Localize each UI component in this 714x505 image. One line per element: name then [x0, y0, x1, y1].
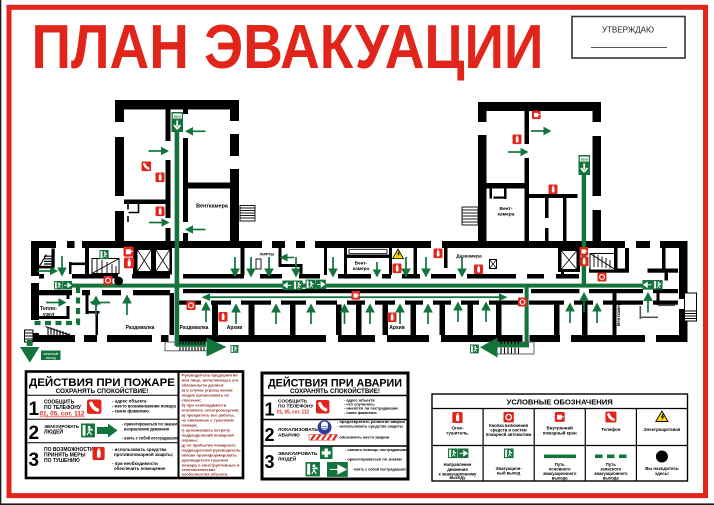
svg-text:- свою фамилию: - свою фамилию — [112, 409, 149, 414]
svg-text:- обозначить место аварии: - обозначить место аварии — [337, 435, 390, 440]
svg-text:- оказать помощь пострадавшим: - оказать помощь пострадавшим — [345, 447, 408, 452]
svg-text:ЛЮДЕЙ: ЛЮДЕЙ — [44, 428, 63, 436]
svg-text:- использовать средства защиты: - использовать средства защиты — [337, 424, 404, 429]
svg-text:ЭВАКУИРОВАТЬ: ЭВАКУИРОВАТЬ — [278, 451, 318, 457]
svg-text:Архив: Архив — [389, 325, 405, 331]
svg-text:ный выход: ный выход — [497, 471, 521, 476]
svg-text:ПО ТУШЕНИЮ: ПО ТУШЕНИЮ — [44, 458, 80, 464]
svg-text:Вент-: Вент- — [355, 261, 368, 266]
svg-text:узел: узел — [43, 312, 55, 318]
svg-text:01, 05, сот. 112: 01, 05, сот. 112 — [40, 411, 86, 418]
svg-text:ПЛАН ЭВАКУАЦИИ: ПЛАН ЭВАКУАЦИИ — [32, 13, 544, 82]
svg-text:выход: выход — [46, 356, 56, 360]
svg-text:тушитель.: тушитель. — [446, 431, 469, 436]
svg-text:направления движения: направления движения — [124, 427, 169, 432]
svg-text:2: 2 — [265, 425, 275, 445]
svg-text:особенностях объекта.: особенностях объекта. — [182, 471, 229, 476]
svg-text:здесь!: здесь! — [655, 471, 669, 476]
svg-text:Дезкамера: Дезкамера — [456, 254, 482, 260]
svg-text:противопожарной защиты;: противопожарной защиты; — [114, 452, 174, 457]
svg-text:пожарной автоматики: пожарной автоматики — [486, 432, 532, 437]
svg-text:выхода: выхода — [552, 476, 569, 481]
svg-text:Венткамера: Венткамера — [616, 300, 621, 326]
svg-text:ЛИФТЫ: ЛИФТЫ — [260, 253, 275, 257]
svg-text:- свою фамилию: - свою фамилию — [344, 410, 377, 415]
svg-text:вых: вых — [174, 115, 181, 119]
svg-text:АВАРИЮ: АВАРИЮ — [278, 433, 300, 439]
svg-text:выходу: выходу — [450, 475, 467, 480]
svg-text:- взять с собой пострадавших: - взять с собой пострадавших — [352, 467, 407, 472]
svg-text:УТВЕРЖДАЮ: УТВЕРЖДАЮ — [602, 26, 654, 35]
svg-text:Архив: Архив — [227, 325, 243, 331]
svg-text:СОХРАНЯТЬ СПОКОЙСТВИЕ!: СОХРАНЯТЬ СПОКОЙСТВИЕ! — [290, 387, 380, 395]
svg-text:- ориентироваться по знакам: - ориентироваться по знакам — [345, 457, 402, 462]
svg-text:камера: камера — [353, 266, 370, 271]
svg-text:01, 05, сот. 112: 01, 05, сот. 112 — [277, 410, 309, 416]
svg-text:Раздевалка: Раздевалка — [180, 325, 209, 331]
svg-text:- взять с собой пострадавших: - взять с собой пострадавших — [122, 436, 178, 441]
svg-text:Телефон: Телефон — [601, 427, 621, 432]
svg-text:выхода: выхода — [603, 476, 620, 481]
svg-text:обеспечить помещение: обеспечить помещение — [114, 466, 166, 471]
svg-text:2: 2 — [29, 423, 40, 444]
svg-text:3: 3 — [265, 452, 275, 472]
svg-text:вых: вых — [581, 158, 588, 162]
svg-text:камера: камера — [498, 213, 515, 218]
svg-text:пожарный кран: пожарный кран — [543, 431, 577, 436]
svg-text:1: 1 — [265, 400, 275, 420]
svg-text:СОХРАНЯТЬ СПОКОЙСТВИЕ!: СОХРАНЯТЬ СПОКОЙСТВИЕ! — [56, 386, 149, 395]
svg-text:Вент-: Вент- — [500, 206, 513, 212]
svg-text:Электрощитовая: Электрощитовая — [644, 427, 681, 432]
svg-text:ЛОКАЛИЗОВАТЬ: ЛОКАЛИЗОВАТЬ — [278, 427, 318, 433]
svg-text:УСЛОВНЫЕ ОБОЗНАЧЕНИЯ: УСЛОВНЫЕ ОБОЗНАЧЕНИЯ — [507, 398, 613, 407]
svg-text:3: 3 — [29, 450, 40, 471]
svg-text:1: 1 — [29, 399, 40, 420]
svg-text:Венткамера: Венткамера — [196, 204, 229, 210]
svg-text:Раздевалка: Раздевалка — [126, 325, 155, 331]
